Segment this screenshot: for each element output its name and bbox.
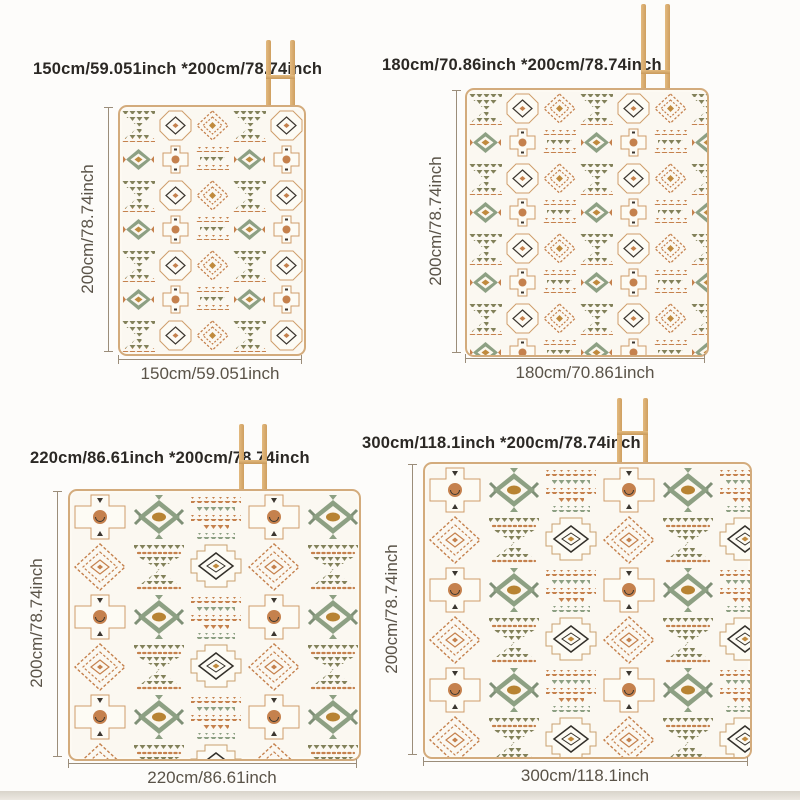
- picnic-mat-preview: [68, 489, 361, 761]
- width-dimension-label: 150cm/59.051inch: [141, 364, 280, 384]
- height-dimension-label: 200cm/78.74inch: [382, 544, 402, 673]
- width-dimension-line: [68, 763, 357, 764]
- width-dimension-label: 180cm/70.861inch: [516, 363, 655, 383]
- picnic-mat-preview: [465, 88, 709, 357]
- height-dimension-line: [57, 491, 58, 757]
- height-dimension-line: [412, 464, 413, 755]
- height-dimension-line: [108, 107, 109, 352]
- backdrop-floor-strip: [0, 791, 800, 800]
- height-dimension-label: 200cm/78.74inch: [27, 558, 47, 687]
- height-dimension-label: 200cm/78.74inch: [426, 156, 446, 285]
- size-title: 220cm/86.61inch *200cm/78.74inch: [30, 449, 310, 468]
- width-dimension-line: [465, 358, 705, 359]
- width-dimension-line: [118, 359, 302, 360]
- width-dimension-line: [423, 761, 748, 762]
- product-size-chart: 150cm/59.051inch *200cm/78.74inch 200cm/…: [0, 0, 800, 800]
- width-dimension-label: 300cm/118.1inch: [521, 766, 649, 786]
- width-dimension-label: 220cm/86.61inch: [147, 768, 276, 788]
- size-title: 300cm/118.1inch *200cm/78.74inch: [362, 434, 641, 453]
- size-title: 180cm/70.86inch *200cm/78.74inch: [382, 56, 662, 75]
- height-dimension-line: [456, 90, 457, 353]
- height-dimension-label: 200cm/78.74inch: [78, 164, 98, 293]
- picnic-mat-preview: [118, 105, 306, 356]
- picnic-mat-preview: [423, 462, 752, 759]
